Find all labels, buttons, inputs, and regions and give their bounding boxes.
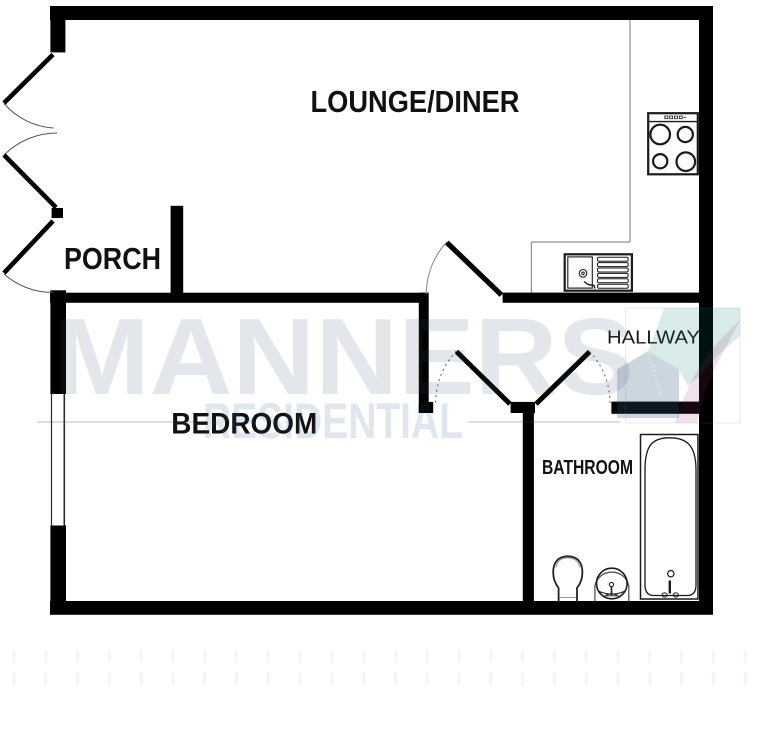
- svg-text:PORCH: PORCH: [64, 241, 161, 276]
- svg-text:BATHROOM: BATHROOM: [542, 457, 633, 479]
- svg-text:RESIDENTIAL: RESIDENTIAL: [203, 393, 463, 449]
- svg-text:LOUNGE/DINER: LOUNGE/DINER: [311, 84, 520, 119]
